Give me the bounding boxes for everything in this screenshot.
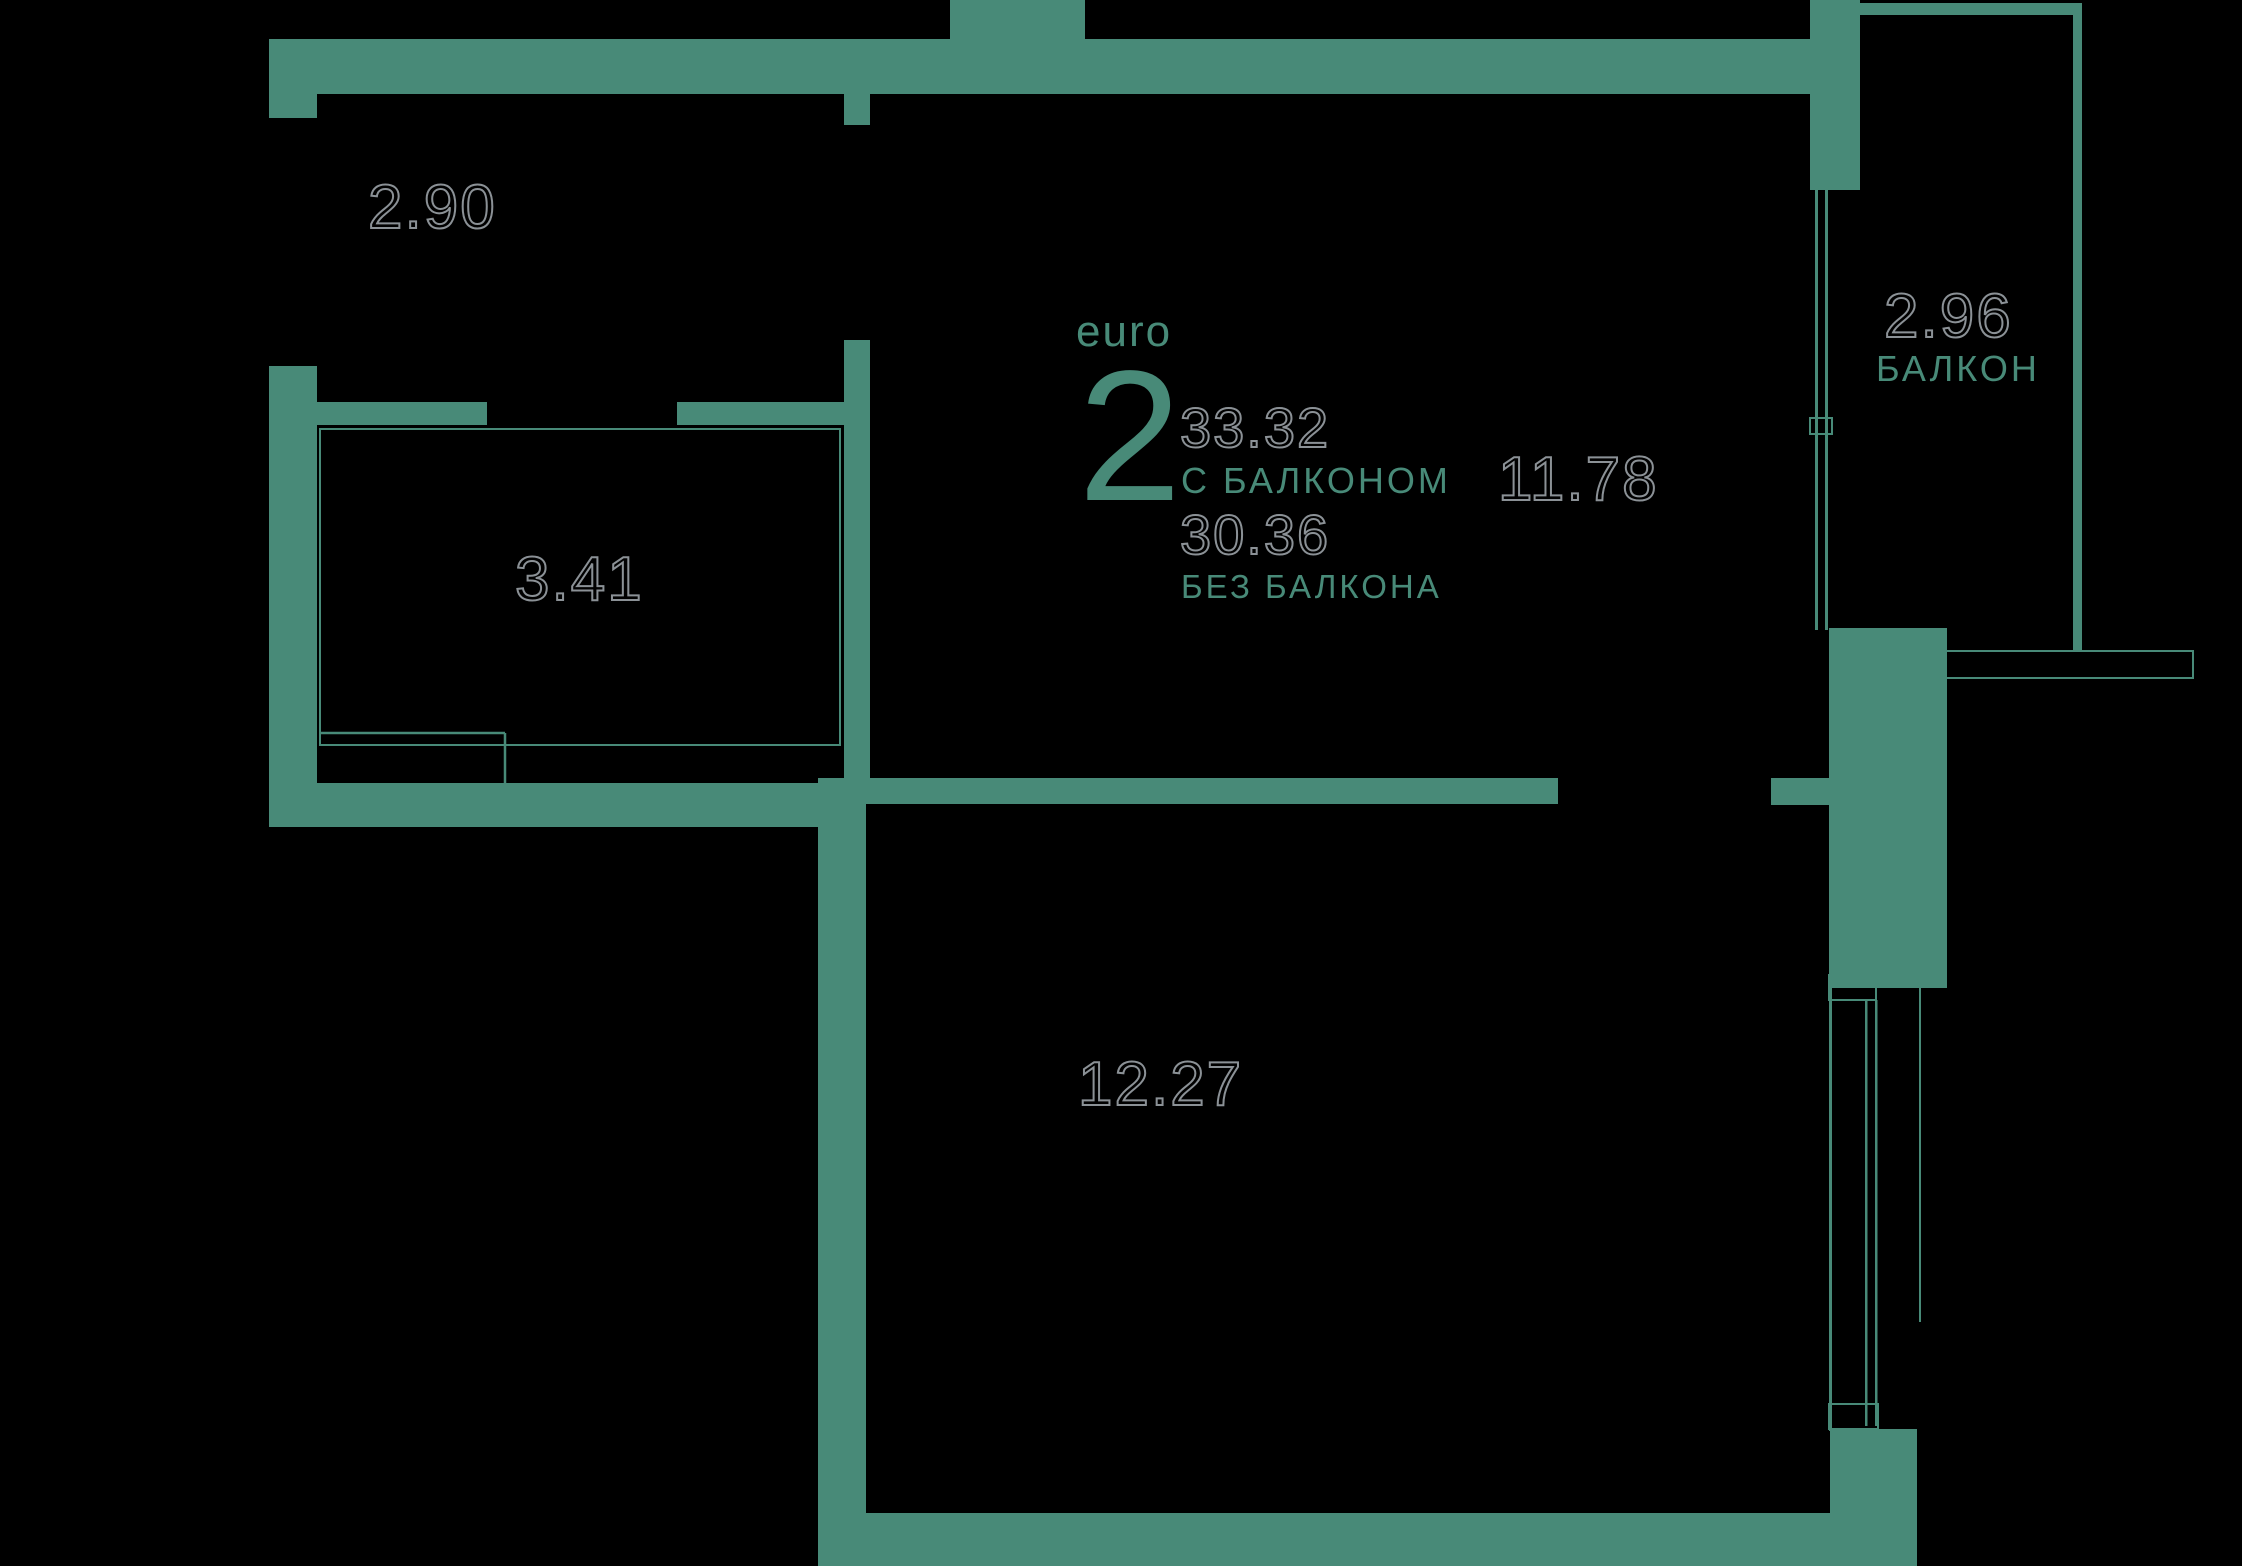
unit-rooms-count: 2 — [1078, 333, 1181, 540]
wall-central-middle — [844, 340, 870, 783]
balcony-ledge-right-line — [2192, 650, 2194, 679]
wall-right-pier — [1829, 628, 1947, 988]
balcony-wall-top — [1860, 3, 2082, 15]
wall-left-upper — [269, 39, 317, 118]
wall-top-block — [950, 0, 1085, 94]
bedroom-area-label: 12.27 — [1078, 1050, 1243, 1119]
wall-central-lower — [818, 804, 866, 1566]
wall-hallway-bottom — [269, 783, 866, 827]
balcony-ledge-bottom-line — [1947, 677, 2194, 679]
living-area-label: 11.78 — [1498, 445, 1659, 514]
upper-window-outer-line — [1815, 190, 1818, 630]
lower-window-joint-bottom — [1829, 1404, 1878, 1429]
wall-central-upper — [844, 94, 870, 125]
wall-bathroom-top-right — [677, 402, 844, 425]
hallway-area-label: 2.90 — [368, 173, 497, 242]
balcony-area-label: 2.96 — [1884, 282, 2013, 351]
unit-without-balcony-label: БЕЗ БАЛКОНА — [1181, 568, 1442, 605]
balcony-wall-right — [2073, 3, 2082, 651]
wall-left-lower — [269, 366, 317, 827]
unit-with-balcony-label: С БАЛКОНОМ — [1181, 460, 1451, 501]
lower-window-glazing-line-a — [1865, 1000, 1868, 1426]
unit-area-without-balcony: 30.36 — [1180, 503, 1330, 566]
wall-balcony-pillar — [1810, 0, 1860, 190]
wall-room-divider — [818, 778, 1558, 804]
floor-plan-drawing: 2.90 3.41 11.78 12.27 2.96 БАЛКОН euro 2… — [0, 0, 2242, 1566]
wall-bathroom-top-left — [317, 402, 487, 425]
upper-window-inner-line — [1825, 190, 1828, 630]
floor-plan: 2.90 3.41 11.78 12.27 2.96 БАЛКОН euro 2… — [0, 0, 2242, 1566]
wall-room-divider-stub — [1771, 778, 1829, 805]
wall-bottom — [818, 1513, 1830, 1566]
bathroom-area-label: 3.41 — [515, 545, 644, 614]
balcony-name-label: БАЛКОН — [1876, 348, 2040, 389]
balcony-ledge-top-line — [1921, 650, 2194, 652]
wall-bottom-right-block — [1830, 1429, 1917, 1566]
unit-area-with-balcony: 33.32 — [1180, 396, 1330, 459]
lower-window-right-line — [1919, 988, 1921, 1322]
lower-window-left-line — [1829, 988, 1832, 1431]
lower-window-glazing-line-b — [1875, 1000, 1878, 1426]
upper-window-joint — [1810, 418, 1832, 434]
